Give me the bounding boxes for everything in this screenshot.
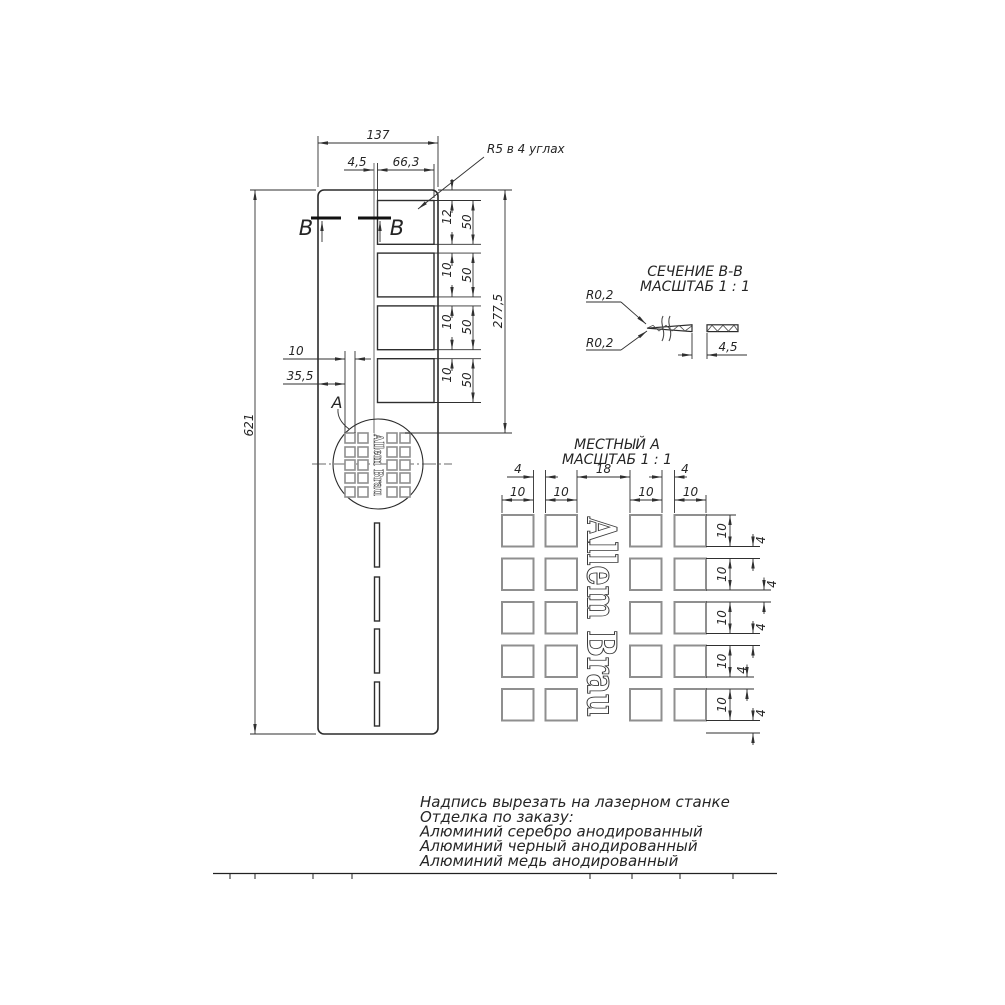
dim-height-total: 621 — [242, 414, 256, 437]
dim-rowgap-4: 4 — [735, 666, 749, 674]
dim-col-4: 10 — [683, 485, 699, 499]
dim-slot-height-2: 50 — [460, 267, 474, 283]
title-block-edge — [213, 874, 777, 880]
section-profile — [647, 316, 738, 341]
dim-slot-width: 66,3 — [393, 155, 420, 169]
radius-note-top: R0,2 — [586, 288, 613, 302]
dim-gap-left: 4 — [514, 462, 522, 476]
dim-thickness: 4,5 — [718, 340, 737, 354]
dim-gap-1: 10 — [440, 262, 454, 278]
dim-gap-center: 18 — [596, 462, 612, 476]
dim-gap-right: 4 — [681, 462, 689, 476]
detail-title: МЕСТНЫЙ А — [574, 435, 660, 453]
detail-label: А — [331, 393, 343, 412]
dim-col-3: 10 — [638, 485, 654, 499]
dim-gap-3: 10 — [440, 367, 454, 383]
notes-block: Надпись вырезать на лазерном станке Отде… — [419, 793, 730, 870]
brand-engraving-small: Allem Brau — [370, 433, 385, 496]
dim-rowgap-1: 4 — [754, 536, 768, 544]
dim-square-offset: 35,5 — [287, 369, 314, 383]
section-label-left: В — [299, 216, 313, 240]
dim-slot-height-4: 50 — [460, 372, 474, 388]
dim-row-2: 10 — [715, 566, 729, 582]
dim-rowgap-2: 4 — [765, 580, 779, 588]
technical-drawing: Allem Brau В В — [0, 0, 1005, 1005]
section-label-right: В — [390, 216, 404, 240]
dim-span: 277,5 — [491, 294, 505, 328]
detail-view: МЕСТНЫЙ А МАСШТАБ 1 : 1 Allem Brau — [502, 435, 779, 745]
corner-radius-note: R5 в 4 углах — [487, 142, 566, 156]
section-view: СЕЧЕНИЕ В-В МАСШТАБ 1 : 1 R0,2 R0,2 4,5 — [586, 264, 750, 359]
main-view: Allem Brau В В — [242, 128, 566, 734]
dim-row-1: 10 — [715, 523, 729, 539]
dim-gap-2: 10 — [440, 314, 454, 330]
plate-large-slots — [378, 201, 435, 403]
brand-engraving-large: Allem Brau — [578, 516, 625, 717]
dim-top-gap: 12 — [440, 209, 454, 224]
plate-narrow-slots — [375, 523, 380, 726]
dim-rowgap-3: 4 — [754, 623, 768, 631]
dim-slot-height-1: 50 — [460, 214, 474, 230]
dim-offset: 4,5 — [347, 155, 366, 169]
dim-width-total: 137 — [367, 128, 390, 142]
section-title: СЕЧЕНИЕ В-В — [647, 264, 743, 280]
dim-slot-height-3: 50 — [460, 319, 474, 335]
radius-note-bottom: R0,2 — [586, 336, 613, 350]
note-line-5: Алюминий медь анодированный — [419, 852, 679, 870]
detail-scale: МАСШТАБ 1 : 1 — [562, 452, 672, 468]
dim-col-1: 10 — [510, 485, 526, 499]
section-scale: МАСШТАБ 1 : 1 — [640, 279, 750, 295]
dim-row-4: 10 — [715, 653, 729, 669]
dim-row-5: 10 — [715, 697, 729, 713]
drawing-sheet: Allem Brau В В — [0, 0, 1005, 1005]
dim-square-width: 10 — [288, 344, 304, 358]
dim-row-3: 10 — [715, 610, 729, 626]
dim-rowgap-5: 4 — [754, 709, 768, 717]
dim-col-2: 10 — [554, 485, 570, 499]
